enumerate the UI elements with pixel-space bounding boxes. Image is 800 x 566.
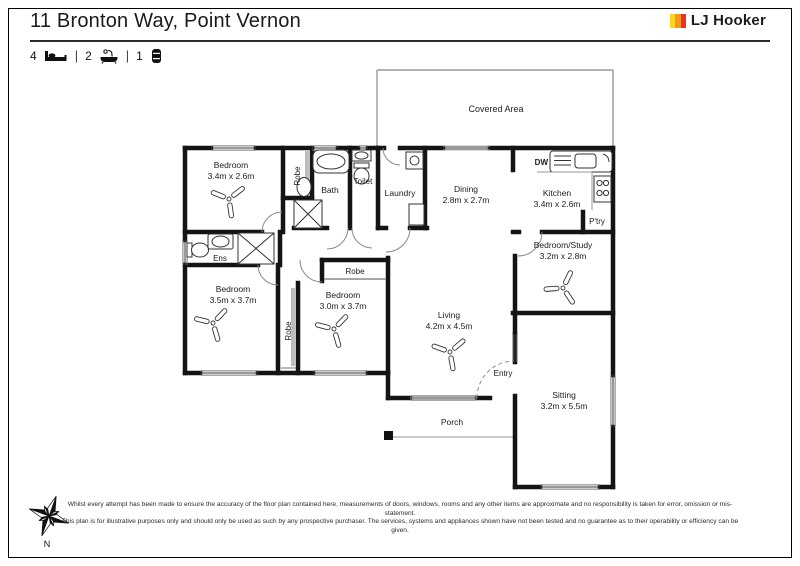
disclaimer: Whilst every attempt has been made to en…	[55, 501, 745, 535]
disclaimer-line2: This plan is for illustrative purposes o…	[55, 518, 745, 535]
ensuite-fixtures	[187, 233, 274, 264]
label-dishwasher: DW	[535, 158, 549, 167]
label-kitchen-name: Kitchen	[543, 188, 572, 198]
label-kitchen-dims: 3.4m x 2.6m	[534, 199, 581, 209]
label-laundry: Laundry	[385, 188, 416, 198]
label-bedroom3-dims: 3.0m x 3.7m	[320, 301, 367, 311]
label-bedroom2-dims: 3.5m x 3.7m	[210, 295, 257, 305]
label-bedroom3-name: Bedroom	[326, 290, 361, 300]
label-covered-area: Covered Area	[468, 104, 523, 114]
label-bedroom1-name: Bedroom	[214, 160, 249, 170]
label-living-name: Living	[438, 310, 460, 320]
label-dining-name: Dining	[454, 184, 478, 194]
ceiling-fan-icon	[541, 269, 581, 311]
cooktop	[594, 176, 611, 202]
label-robe1: Robe	[293, 166, 302, 186]
ceiling-fan-icon	[193, 306, 228, 343]
label-bedroom2-name: Bedroom	[216, 284, 251, 294]
label-study-dims: 3.2m x 2.8m	[540, 251, 587, 261]
label-robe2: Robe	[284, 321, 293, 341]
porch-outline	[384, 431, 513, 440]
label-robe3: Robe	[345, 267, 365, 276]
label-living-dims: 4.2m x 4.5m	[426, 321, 473, 331]
label-ensuite: Ens	[213, 254, 227, 263]
label-bath: Bath	[321, 185, 339, 195]
ceiling-fan-icon	[206, 179, 245, 220]
label-entry: Entry	[494, 369, 513, 378]
shower	[294, 200, 322, 228]
kitchen-sink-unit	[550, 151, 612, 172]
ceiling-fan-icon	[428, 333, 466, 373]
label-sitting-name: Sitting	[552, 390, 576, 400]
label-pantry: P'try	[589, 217, 605, 226]
label-dining-dims: 2.8m x 2.7m	[443, 195, 490, 205]
ceiling-fan-icon	[314, 312, 349, 349]
compass-north-label: N	[44, 539, 51, 549]
disclaimer-line1: Whilst every attempt has been made to en…	[55, 501, 745, 518]
label-study-name: Bedroom/Study	[534, 240, 593, 250]
floorplan-drawing: Covered Area Bedroom 3.4m x 2.6m Robe Ba…	[0, 0, 800, 566]
label-toilet: Toilet	[354, 177, 373, 186]
label-bedroom1-dims: 3.4m x 2.6m	[208, 171, 255, 181]
floorplan-page: 11 Bronton Way, Point Vernon LJ Hooker 4…	[0, 0, 800, 566]
label-porch: Porch	[441, 417, 463, 427]
label-sitting-dims: 3.2m x 5.5m	[541, 401, 588, 411]
